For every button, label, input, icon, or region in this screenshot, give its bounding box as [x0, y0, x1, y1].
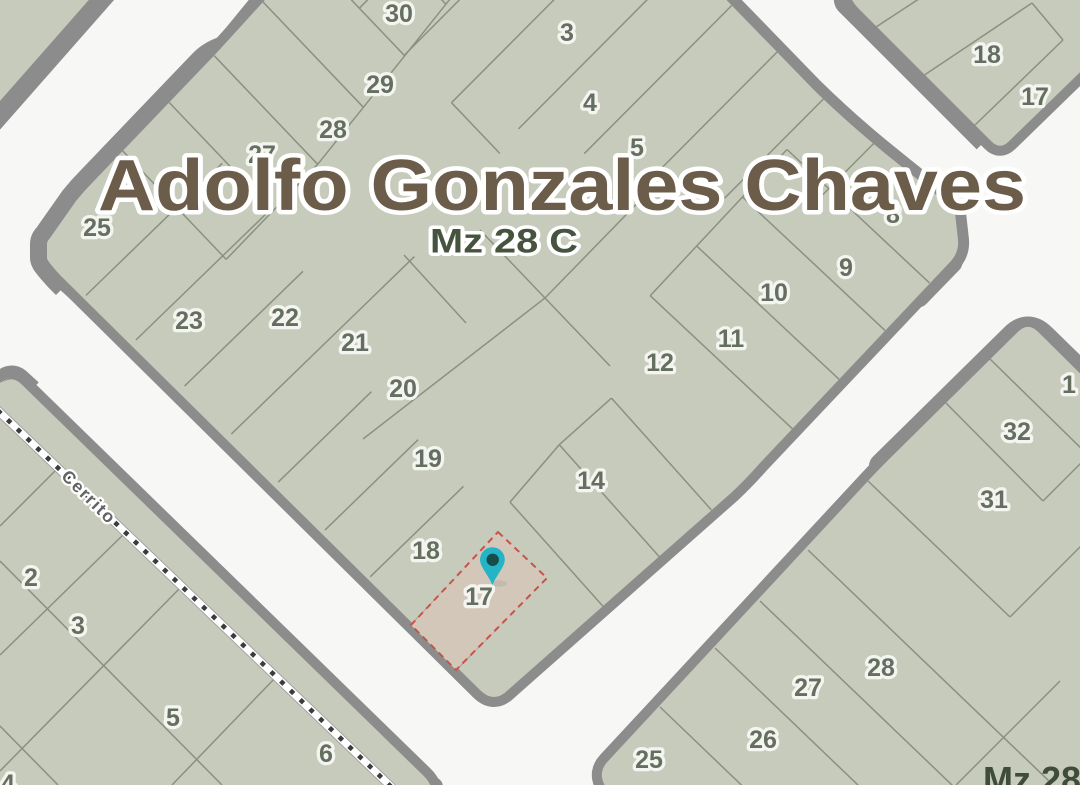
svg-text:32: 32: [1003, 418, 1031, 446]
svg-text:3: 3: [71, 612, 85, 640]
svg-text:30: 30: [385, 0, 413, 28]
svg-text:31: 31: [980, 486, 1008, 514]
svg-text:18: 18: [973, 41, 1001, 69]
svg-text:28: 28: [319, 116, 347, 144]
svg-text:Mz 28 C: Mz 28 C: [430, 223, 578, 261]
svg-text:20: 20: [389, 375, 417, 403]
svg-text:6: 6: [319, 740, 333, 768]
svg-text:28: 28: [867, 654, 895, 682]
svg-text:21: 21: [341, 329, 369, 357]
svg-text:5: 5: [166, 704, 180, 732]
svg-text:9: 9: [839, 254, 853, 282]
svg-text:4: 4: [583, 89, 597, 117]
svg-text:19: 19: [414, 445, 442, 473]
svg-text:2: 2: [24, 564, 38, 592]
svg-text:17: 17: [465, 583, 493, 611]
svg-text:22: 22: [271, 304, 299, 332]
svg-text:3: 3: [560, 19, 574, 47]
svg-text:29: 29: [366, 71, 394, 99]
svg-text:4: 4: [1, 770, 15, 785]
svg-text:Adolfo Gonzales Chaves: Adolfo Gonzales Chaves: [98, 145, 1026, 226]
svg-text:1: 1: [1062, 371, 1076, 399]
svg-text:27: 27: [794, 674, 822, 702]
svg-text:17: 17: [1021, 83, 1049, 111]
svg-text:23: 23: [175, 307, 203, 335]
svg-text:12: 12: [646, 349, 674, 377]
svg-text:Mz 28 B: Mz 28 B: [983, 759, 1080, 785]
svg-text:18: 18: [412, 537, 440, 565]
svg-text:25: 25: [635, 746, 663, 774]
svg-text:11: 11: [718, 325, 745, 353]
svg-text:14: 14: [577, 467, 605, 495]
svg-text:10: 10: [760, 279, 788, 307]
svg-text:26: 26: [749, 726, 777, 754]
